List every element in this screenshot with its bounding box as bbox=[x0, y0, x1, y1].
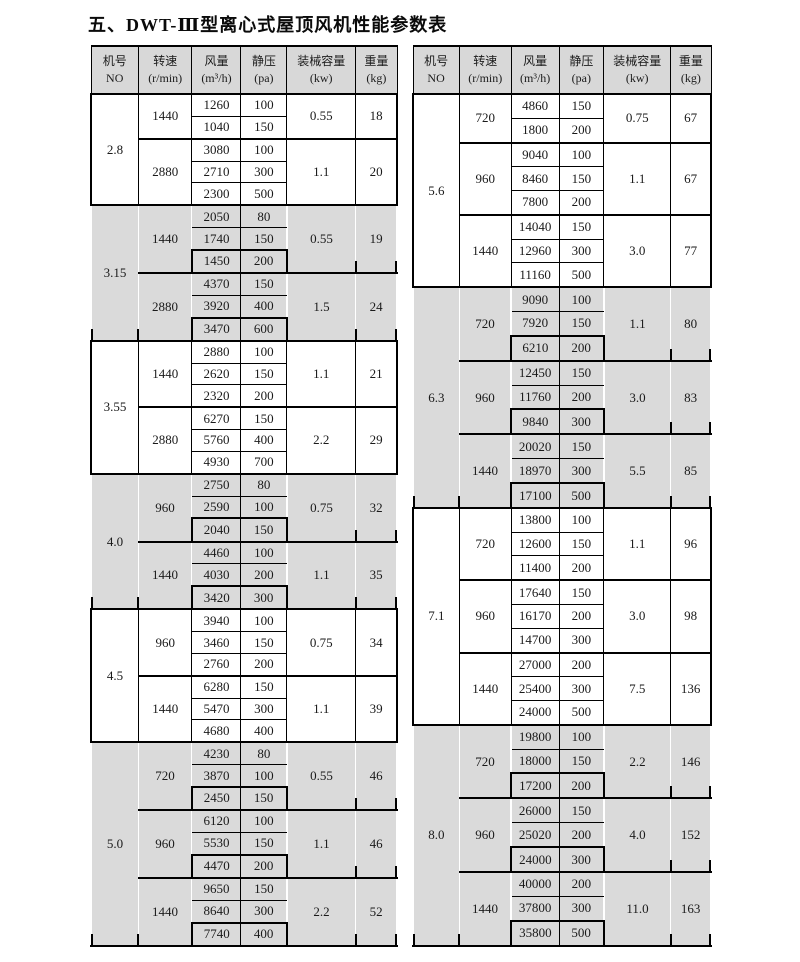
col-header-pressure-unit: (pa) bbox=[572, 71, 591, 85]
cell-airflow: 5530 bbox=[192, 832, 241, 854]
cell-airflow: 3940 bbox=[192, 609, 241, 631]
cell-static-pressure: 150 bbox=[241, 676, 287, 698]
cell-static-pressure: 300 bbox=[559, 628, 604, 652]
cell-airflow: 4860 bbox=[511, 94, 559, 118]
cell-airflow: 4370 bbox=[192, 273, 241, 295]
cell-static-pressure: 500 bbox=[559, 263, 604, 287]
col-header-no-unit: NO bbox=[106, 71, 123, 85]
data-row: 2.8144012601000.5518 bbox=[91, 94, 397, 116]
cell-airflow: 4680 bbox=[192, 720, 241, 742]
cell-weight: 46 bbox=[356, 742, 397, 810]
cell-speed: 1440 bbox=[138, 94, 192, 139]
cell-power: 1.1 bbox=[287, 341, 356, 407]
cell-speed: 960 bbox=[459, 361, 511, 435]
cell-airflow: 1450 bbox=[192, 250, 241, 273]
data-row: 4.09602750800.7532 bbox=[91, 474, 397, 496]
cell-static-pressure: 400 bbox=[241, 295, 287, 317]
col-header-pressure: 静压(pa) bbox=[559, 46, 604, 94]
cell-airflow: 6280 bbox=[192, 676, 241, 698]
cell-static-pressure: 200 bbox=[559, 773, 604, 798]
cell-fan-no: 4.0 bbox=[91, 474, 138, 610]
cell-airflow: 13800 bbox=[511, 508, 559, 532]
cell-power: 1.1 bbox=[604, 143, 671, 215]
cell-power: 2.2 bbox=[287, 407, 356, 473]
cell-airflow: 24000 bbox=[511, 847, 559, 872]
cell-airflow: 4030 bbox=[192, 564, 241, 586]
cell-power: 11.0 bbox=[604, 872, 671, 946]
cell-static-pressure: 200 bbox=[241, 385, 287, 407]
cell-speed: 720 bbox=[459, 287, 511, 361]
cell-airflow: 6210 bbox=[511, 336, 559, 361]
cell-speed: 1440 bbox=[138, 676, 192, 742]
cell-fan-no: 5.6 bbox=[413, 94, 459, 287]
cell-power: 0.75 bbox=[287, 609, 356, 675]
cell-power: 1.1 bbox=[287, 542, 356, 610]
cell-airflow: 19800 bbox=[511, 725, 559, 749]
cell-speed: 960 bbox=[138, 474, 192, 542]
cell-airflow: 11160 bbox=[511, 263, 559, 287]
col-header-speed: 转速(r/min) bbox=[138, 46, 192, 94]
col-header-speed: 转速(r/min) bbox=[459, 46, 511, 94]
cell-airflow: 2320 bbox=[192, 385, 241, 407]
cell-airflow: 2620 bbox=[192, 363, 241, 385]
data-row: 3.1514402050800.5519 bbox=[91, 205, 397, 227]
cell-airflow: 1740 bbox=[192, 228, 241, 250]
cell-power: 2.2 bbox=[604, 725, 671, 799]
data-row: 6.372090901001.180 bbox=[413, 287, 711, 311]
cell-speed: 960 bbox=[138, 810, 192, 878]
cell-weight: 18 bbox=[356, 94, 397, 139]
col-header-power-unit: (kw) bbox=[626, 71, 649, 85]
col-header-no-unit: NO bbox=[427, 71, 444, 85]
col-header-power: 装械容量(kw) bbox=[287, 46, 356, 94]
cell-fan-no: 3.15 bbox=[91, 205, 138, 341]
cell-airflow: 7800 bbox=[511, 191, 559, 215]
cell-airflow: 18000 bbox=[511, 749, 559, 773]
cell-speed: 720 bbox=[138, 742, 192, 810]
cell-static-pressure: 150 bbox=[241, 632, 287, 654]
cell-static-pressure: 500 bbox=[559, 921, 604, 946]
cell-static-pressure: 100 bbox=[241, 810, 287, 832]
cell-power: 0.55 bbox=[287, 205, 356, 273]
data-row: 3.55144028801001.121 bbox=[91, 341, 397, 363]
cell-weight: 152 bbox=[671, 798, 711, 872]
col-header-speed-cn: 转速 bbox=[473, 54, 497, 68]
cell-static-pressure: 100 bbox=[559, 508, 604, 532]
cell-static-pressure: 300 bbox=[241, 161, 287, 183]
cell-static-pressure: 150 bbox=[241, 832, 287, 854]
cell-static-pressure: 200 bbox=[241, 653, 287, 675]
cell-speed: 960 bbox=[459, 798, 511, 872]
cell-airflow: 2050 bbox=[192, 205, 241, 227]
cell-fan-no: 8.0 bbox=[413, 725, 459, 946]
cell-airflow: 5760 bbox=[192, 430, 241, 452]
cell-static-pressure: 200 bbox=[559, 605, 604, 629]
cell-airflow: 14040 bbox=[511, 215, 559, 239]
cell-speed: 1440 bbox=[459, 215, 511, 287]
col-header-power-cn: 装械容量 bbox=[297, 54, 345, 68]
cell-airflow: 17100 bbox=[511, 483, 559, 508]
col-header-airflow: 风量(m³/h) bbox=[511, 46, 559, 94]
cell-weight: 83 bbox=[671, 361, 711, 435]
cell-static-pressure: 400 bbox=[241, 430, 287, 452]
col-header-airflow-cn: 风量 bbox=[204, 54, 228, 68]
cell-static-pressure: 150 bbox=[559, 361, 604, 385]
cell-power: 7.5 bbox=[604, 653, 671, 725]
cell-airflow: 17640 bbox=[511, 580, 559, 604]
col-header-pressure-cn: 静压 bbox=[569, 54, 593, 68]
cell-weight: 77 bbox=[671, 215, 711, 287]
cell-static-pressure: 150 bbox=[559, 749, 604, 773]
cell-static-pressure: 500 bbox=[559, 483, 604, 508]
fan-performance-table-right: 机号NO转速(r/min)风量(m³/h)静压(pa)装械容量(kw)重量(kg… bbox=[412, 45, 712, 947]
cell-airflow: 37800 bbox=[511, 896, 559, 920]
cell-speed: 720 bbox=[459, 94, 511, 143]
cell-power: 4.0 bbox=[604, 798, 671, 872]
cell-static-pressure: 300 bbox=[241, 698, 287, 720]
cell-airflow: 2300 bbox=[192, 183, 241, 205]
data-row: 4.596039401000.7534 bbox=[91, 609, 397, 631]
cell-airflow: 5470 bbox=[192, 698, 241, 720]
cell-airflow: 40000 bbox=[511, 872, 559, 896]
cell-speed: 2880 bbox=[138, 139, 192, 205]
cell-airflow: 17200 bbox=[511, 773, 559, 798]
cell-static-pressure: 500 bbox=[559, 700, 604, 724]
cell-static-pressure: 80 bbox=[241, 742, 287, 764]
cell-weight: 136 bbox=[671, 653, 711, 725]
cell-static-pressure: 400 bbox=[241, 923, 287, 946]
data-row: 5.672048601500.7567 bbox=[413, 94, 711, 118]
cell-static-pressure: 100 bbox=[241, 609, 287, 631]
cell-static-pressure: 300 bbox=[241, 586, 287, 609]
cell-power: 0.55 bbox=[287, 742, 356, 810]
cell-static-pressure: 150 bbox=[241, 787, 287, 810]
cell-static-pressure: 200 bbox=[559, 118, 604, 142]
cell-power: 1.1 bbox=[604, 287, 671, 361]
fan-performance-table-left: 机号NO转速(r/min)风量(m³/h)静压(pa)装械容量(kw)重量(kg… bbox=[90, 45, 398, 947]
cell-weight: 146 bbox=[671, 725, 711, 799]
cell-airflow: 2590 bbox=[192, 496, 241, 518]
cell-airflow: 25400 bbox=[511, 677, 559, 701]
cell-static-pressure: 300 bbox=[559, 239, 604, 263]
document-page: 五、DWT-Ⅲ型离心式屋顶风机性能参数表 机号NO转速(r/min)风量(m³/… bbox=[0, 0, 800, 962]
col-header-weight: 重量(kg) bbox=[671, 46, 711, 94]
cell-power: 0.55 bbox=[287, 94, 356, 139]
col-header-pressure-cn: 静压 bbox=[252, 54, 276, 68]
cell-static-pressure: 150 bbox=[559, 798, 604, 822]
cell-airflow: 3870 bbox=[192, 765, 241, 787]
cell-static-pressure: 600 bbox=[241, 318, 287, 341]
cell-speed: 1440 bbox=[138, 542, 192, 610]
cell-power: 1.1 bbox=[287, 139, 356, 205]
header-row: 机号NO转速(r/min)风量(m³/h)静压(pa)装械容量(kw)重量(kg… bbox=[413, 46, 711, 94]
cell-airflow: 11400 bbox=[511, 556, 559, 580]
tables-container: 机号NO转速(r/min)风量(m³/h)静压(pa)装械容量(kw)重量(kg… bbox=[0, 45, 800, 947]
cell-airflow: 2760 bbox=[192, 653, 241, 675]
cell-weight: 32 bbox=[356, 474, 397, 542]
cell-power: 1.5 bbox=[287, 273, 356, 341]
col-header-pressure-unit: (pa) bbox=[254, 71, 273, 85]
cell-fan-no: 6.3 bbox=[413, 287, 459, 508]
cell-airflow: 26000 bbox=[511, 798, 559, 822]
cell-static-pressure: 150 bbox=[241, 116, 287, 138]
cell-power: 0.75 bbox=[287, 474, 356, 542]
cell-weight: 163 bbox=[671, 872, 711, 946]
cell-speed: 1440 bbox=[459, 872, 511, 946]
cell-airflow: 9840 bbox=[511, 409, 559, 434]
cell-airflow: 11760 bbox=[511, 385, 559, 409]
cell-static-pressure: 80 bbox=[241, 474, 287, 496]
cell-static-pressure: 100 bbox=[241, 542, 287, 564]
cell-speed: 2880 bbox=[138, 273, 192, 341]
cell-static-pressure: 100 bbox=[241, 496, 287, 518]
cell-static-pressure: 150 bbox=[559, 311, 604, 335]
cell-fan-no: 5.0 bbox=[91, 742, 138, 946]
cell-airflow: 2040 bbox=[192, 518, 241, 541]
cell-static-pressure: 150 bbox=[559, 532, 604, 556]
data-row: 7.1720138001001.196 bbox=[413, 508, 711, 532]
cell-speed: 960 bbox=[138, 609, 192, 675]
cell-power: 1.1 bbox=[604, 508, 671, 580]
col-header-weight-cn: 重量 bbox=[364, 54, 388, 68]
cell-static-pressure: 300 bbox=[559, 409, 604, 434]
cell-weight: 96 bbox=[671, 508, 711, 580]
cell-airflow: 8640 bbox=[192, 900, 241, 922]
cell-airflow: 12960 bbox=[511, 239, 559, 263]
cell-weight: 52 bbox=[356, 878, 397, 946]
cell-power: 2.2 bbox=[287, 878, 356, 946]
col-header-weight-cn: 重量 bbox=[679, 54, 703, 68]
col-header-no: 机号NO bbox=[91, 46, 138, 94]
cell-airflow: 3460 bbox=[192, 632, 241, 654]
cell-power: 3.0 bbox=[604, 361, 671, 435]
cell-weight: 80 bbox=[671, 287, 711, 361]
cell-power: 1.1 bbox=[287, 810, 356, 878]
cell-airflow: 3920 bbox=[192, 295, 241, 317]
cell-fan-no: 4.5 bbox=[91, 609, 138, 742]
cell-weight: 67 bbox=[671, 143, 711, 215]
col-header-pressure: 静压(pa) bbox=[241, 46, 287, 94]
cell-airflow: 35800 bbox=[511, 921, 559, 946]
col-header-power: 装械容量(kw) bbox=[604, 46, 671, 94]
cell-weight: 34 bbox=[356, 609, 397, 675]
cell-airflow: 16170 bbox=[511, 605, 559, 629]
cell-airflow: 4930 bbox=[192, 451, 241, 473]
col-header-airflow: 风量(m³/h) bbox=[192, 46, 241, 94]
cell-speed: 1440 bbox=[138, 341, 192, 407]
cell-static-pressure: 80 bbox=[241, 205, 287, 227]
cell-airflow: 20020 bbox=[511, 434, 559, 458]
cell-weight: 20 bbox=[356, 139, 397, 205]
cell-airflow: 24000 bbox=[511, 700, 559, 724]
cell-weight: 21 bbox=[356, 341, 397, 407]
col-header-weight: 重量(kg) bbox=[356, 46, 397, 94]
cell-airflow: 7740 bbox=[192, 923, 241, 946]
cell-airflow: 2710 bbox=[192, 161, 241, 183]
col-header-weight-unit: (kg) bbox=[366, 71, 386, 85]
data-row: 5.07204230800.5546 bbox=[91, 742, 397, 764]
col-header-no: 机号NO bbox=[413, 46, 459, 94]
col-header-weight-unit: (kg) bbox=[681, 71, 701, 85]
cell-static-pressure: 200 bbox=[559, 556, 604, 580]
cell-static-pressure: 300 bbox=[559, 459, 604, 483]
cell-speed: 720 bbox=[459, 508, 511, 580]
cell-airflow: 9650 bbox=[192, 878, 241, 900]
cell-static-pressure: 150 bbox=[241, 273, 287, 295]
cell-airflow: 27000 bbox=[511, 653, 559, 677]
cell-fan-no: 3.55 bbox=[91, 341, 138, 474]
cell-power: 3.0 bbox=[604, 215, 671, 287]
cell-static-pressure: 200 bbox=[241, 855, 287, 878]
cell-airflow: 9090 bbox=[511, 287, 559, 311]
cell-static-pressure: 100 bbox=[559, 725, 604, 749]
cell-static-pressure: 200 bbox=[559, 336, 604, 361]
cell-weight: 67 bbox=[671, 94, 711, 143]
col-header-airflow-unit: (m³/h) bbox=[520, 71, 550, 85]
cell-static-pressure: 150 bbox=[241, 228, 287, 250]
cell-speed: 720 bbox=[459, 725, 511, 799]
cell-static-pressure: 200 bbox=[559, 872, 604, 896]
cell-power: 3.0 bbox=[604, 580, 671, 652]
cell-speed: 960 bbox=[459, 580, 511, 652]
cell-static-pressure: 200 bbox=[559, 653, 604, 677]
cell-static-pressure: 200 bbox=[559, 191, 604, 215]
cell-airflow: 4230 bbox=[192, 742, 241, 764]
col-header-airflow-cn: 风量 bbox=[523, 54, 547, 68]
cell-airflow: 6120 bbox=[192, 810, 241, 832]
cell-static-pressure: 700 bbox=[241, 451, 287, 473]
cell-speed: 1440 bbox=[138, 205, 192, 273]
col-header-airflow-unit: (m³/h) bbox=[201, 71, 231, 85]
cell-airflow: 18970 bbox=[511, 459, 559, 483]
cell-static-pressure: 100 bbox=[241, 139, 287, 161]
cell-static-pressure: 300 bbox=[241, 900, 287, 922]
cell-static-pressure: 150 bbox=[241, 518, 287, 541]
header-row: 机号NO转速(r/min)风量(m³/h)静压(pa)装械容量(kw)重量(kg… bbox=[91, 46, 397, 94]
cell-airflow: 1040 bbox=[192, 116, 241, 138]
cell-static-pressure: 200 bbox=[241, 250, 287, 273]
performance-table-right-wrap: 机号NO转速(r/min)风量(m³/h)静压(pa)装械容量(kw)重量(kg… bbox=[412, 45, 712, 947]
col-header-speed-unit: (r/min) bbox=[468, 71, 502, 85]
cell-weight: 29 bbox=[356, 407, 397, 473]
cell-airflow: 4460 bbox=[192, 542, 241, 564]
col-header-no-cn: 机号 bbox=[424, 54, 448, 68]
cell-power: 1.1 bbox=[287, 676, 356, 742]
cell-speed: 1440 bbox=[459, 434, 511, 508]
cell-static-pressure: 150 bbox=[559, 215, 604, 239]
cell-airflow: 14700 bbox=[511, 628, 559, 652]
performance-table-left-wrap: 机号NO转速(r/min)风量(m³/h)静压(pa)装械容量(kw)重量(kg… bbox=[90, 45, 398, 947]
data-row: 8.0720198001002.2146 bbox=[413, 725, 711, 749]
cell-airflow: 1800 bbox=[511, 118, 559, 142]
cell-airflow: 1260 bbox=[192, 94, 241, 116]
col-header-power-cn: 装械容量 bbox=[613, 54, 661, 68]
cell-airflow: 2450 bbox=[192, 787, 241, 810]
cell-speed: 1440 bbox=[138, 878, 192, 946]
cell-airflow: 3080 bbox=[192, 139, 241, 161]
cell-static-pressure: 200 bbox=[559, 823, 604, 847]
cell-fan-no: 2.8 bbox=[91, 94, 138, 205]
cell-static-pressure: 150 bbox=[559, 94, 604, 118]
cell-static-pressure: 300 bbox=[559, 896, 604, 920]
cell-airflow: 12450 bbox=[511, 361, 559, 385]
cell-static-pressure: 400 bbox=[241, 720, 287, 742]
cell-static-pressure: 100 bbox=[241, 341, 287, 363]
cell-static-pressure: 150 bbox=[559, 580, 604, 604]
cell-airflow: 9040 bbox=[511, 143, 559, 167]
col-header-no-cn: 机号 bbox=[103, 54, 127, 68]
cell-static-pressure: 100 bbox=[241, 765, 287, 787]
page-title: 五、DWT-Ⅲ型离心式屋顶风机性能参数表 bbox=[0, 0, 800, 45]
cell-static-pressure: 150 bbox=[241, 878, 287, 900]
cell-airflow: 7920 bbox=[511, 311, 559, 335]
cell-weight: 46 bbox=[356, 810, 397, 878]
cell-airflow: 2880 bbox=[192, 341, 241, 363]
cell-static-pressure: 150 bbox=[241, 407, 287, 429]
cell-static-pressure: 200 bbox=[559, 385, 604, 409]
cell-power: 5.5 bbox=[604, 434, 671, 508]
col-header-power-unit: (kw) bbox=[310, 71, 333, 85]
col-header-speed-cn: 转速 bbox=[153, 54, 177, 68]
cell-weight: 98 bbox=[671, 580, 711, 652]
cell-weight: 35 bbox=[356, 542, 397, 610]
cell-airflow: 6270 bbox=[192, 407, 241, 429]
cell-static-pressure: 500 bbox=[241, 183, 287, 205]
cell-airflow: 4470 bbox=[192, 855, 241, 878]
cell-speed: 2880 bbox=[138, 407, 192, 473]
cell-airflow: 3470 bbox=[192, 318, 241, 341]
cell-airflow: 25020 bbox=[511, 823, 559, 847]
cell-static-pressure: 300 bbox=[559, 677, 604, 701]
cell-airflow: 3420 bbox=[192, 586, 241, 609]
cell-static-pressure: 100 bbox=[241, 94, 287, 116]
cell-weight: 39 bbox=[356, 676, 397, 742]
cell-speed: 960 bbox=[459, 143, 511, 215]
cell-fan-no: 7.1 bbox=[413, 508, 459, 725]
col-header-speed-unit: (r/min) bbox=[148, 71, 182, 85]
cell-power: 0.75 bbox=[604, 94, 671, 143]
cell-weight: 19 bbox=[356, 205, 397, 273]
cell-static-pressure: 100 bbox=[559, 143, 604, 167]
cell-static-pressure: 200 bbox=[241, 564, 287, 586]
cell-airflow: 8460 bbox=[511, 167, 559, 191]
cell-static-pressure: 300 bbox=[559, 847, 604, 872]
cell-airflow: 12600 bbox=[511, 532, 559, 556]
cell-static-pressure: 100 bbox=[559, 287, 604, 311]
cell-static-pressure: 150 bbox=[241, 363, 287, 385]
cell-speed: 1440 bbox=[459, 653, 511, 725]
cell-weight: 24 bbox=[356, 273, 397, 341]
cell-weight: 85 bbox=[671, 434, 711, 508]
cell-static-pressure: 150 bbox=[559, 167, 604, 191]
cell-static-pressure: 150 bbox=[559, 434, 604, 458]
cell-airflow: 2750 bbox=[192, 474, 241, 496]
